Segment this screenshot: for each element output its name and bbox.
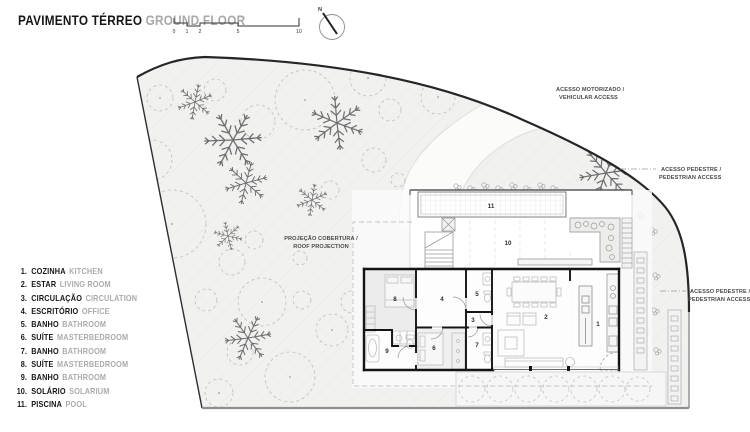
vehicular-access-label: ACESSO MOTORIZADO / VEHICULAR ACCESS bbox=[556, 87, 625, 101]
legend-item-7: 7.BANHOBATHROOM bbox=[14, 346, 137, 359]
legend-item-5: 5.BANHOBATHROOM bbox=[14, 319, 137, 332]
room-label-bath5: 5 bbox=[475, 291, 479, 298]
legend-item-4: 4.ESCRITÓRIOOFFICE bbox=[14, 306, 137, 319]
floor-plan-sheet: PAVIMENTO TÉRREOGROUND FLOOR bbox=[0, 0, 750, 432]
svg-text:ROOF PROJECTION: ROOF PROJECTION bbox=[293, 244, 349, 250]
legend-item-10: 10.SOLÁRIOSOLARIUM bbox=[14, 386, 137, 399]
room-legend: 1.COZINHAKITCHEN 2.ESTARLIVING ROOM 3.CI… bbox=[14, 266, 157, 412]
scale-bar: 0 1 2 5 10 bbox=[173, 18, 302, 35]
side-steps bbox=[622, 218, 632, 268]
room-label-solarium: 10 bbox=[505, 240, 512, 247]
stairs bbox=[425, 232, 453, 268]
room-label-circulation: 3 bbox=[471, 317, 475, 324]
room-label-office: 4 bbox=[440, 296, 444, 303]
room-label-suite6: 6 bbox=[432, 345, 436, 352]
north-arrow: N bbox=[318, 7, 345, 40]
room-label-suite8: 8 bbox=[393, 296, 397, 303]
room-label-pool: 11 bbox=[488, 203, 495, 210]
svg-text:ACESSO MOTORIZADO /: ACESSO MOTORIZADO / bbox=[556, 87, 625, 93]
scale-tick-0: 0 bbox=[173, 29, 176, 35]
scale-tick-5: 5 bbox=[237, 29, 240, 35]
svg-text:PROJEÇÃO COBERTURA /: PROJEÇÃO COBERTURA / bbox=[284, 235, 358, 242]
svg-text:ACESSO PEDESTRE /: ACESSO PEDESTRE / bbox=[690, 289, 750, 295]
svg-text:PEDESTRIAN ACCESS: PEDESTRIAN ACCESS bbox=[688, 297, 750, 303]
legend-item-2: 2.ESTARLIVING ROOM bbox=[14, 279, 137, 292]
scale-tick-1: 1 bbox=[186, 29, 189, 35]
legend-item-1: 1.COZINHAKITCHEN bbox=[14, 266, 137, 279]
room-label-kitchen: 1 bbox=[596, 321, 600, 328]
room-label-bath7: 7 bbox=[475, 342, 479, 349]
room-label-bath9: 9 bbox=[385, 348, 389, 355]
scale-tick-10: 10 bbox=[296, 29, 302, 35]
bench bbox=[518, 259, 592, 265]
legend-item-9: 9.BANHOBATHROOM bbox=[14, 372, 137, 385]
legend-item-8: 8.SUÍTEMASTERBEDROOM bbox=[14, 359, 137, 372]
svg-text:VEHICULAR ACCESS: VEHICULAR ACCESS bbox=[559, 95, 618, 101]
legend-item-3: 3.CIRCULAÇÃOCIRCULATION bbox=[14, 293, 137, 306]
north-label: N bbox=[318, 7, 322, 13]
legend-item-6: 6.SUÍTEMASTERBEDROOM bbox=[14, 332, 137, 345]
svg-text:PEDESTRIAN ACCESS: PEDESTRIAN ACCESS bbox=[659, 175, 722, 181]
house bbox=[364, 269, 619, 371]
room-label-living: 2 bbox=[544, 314, 548, 321]
svg-text:ACESSO PEDESTRE /: ACESSO PEDESTRE / bbox=[661, 167, 721, 173]
legend-item-11: 11.PISCINAPOOL bbox=[14, 399, 137, 412]
scale-tick-2: 2 bbox=[199, 29, 202, 35]
